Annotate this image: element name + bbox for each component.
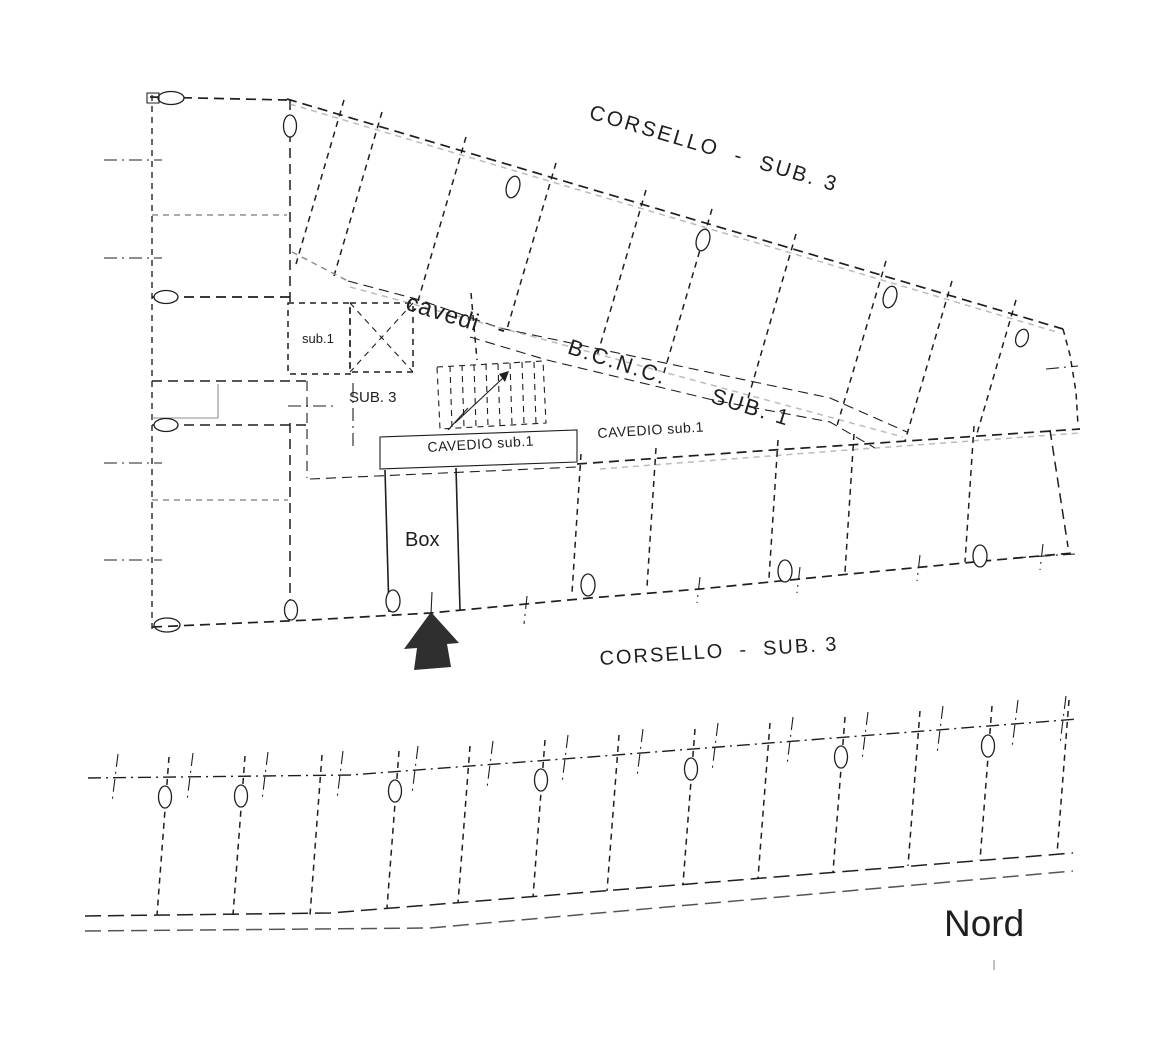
entrance-arrow-icon (404, 612, 459, 670)
upper-left-rooms (104, 92, 353, 633)
label-nord: Nord (944, 905, 1024, 942)
floor-plan-drawing (0, 0, 1167, 1050)
label-sub1-room: sub.1 (302, 332, 334, 345)
label-box-room: Box (405, 530, 439, 550)
stairwell (437, 361, 546, 430)
label-sub3-room: SUB. 3 (349, 390, 397, 405)
floor-plan: CORSELLO - SUB. 3 cavedi - B.C.N.C. SUB.… (0, 0, 1167, 1050)
middle-parking-area (152, 426, 1080, 627)
lower-parking-area (85, 696, 1078, 931)
